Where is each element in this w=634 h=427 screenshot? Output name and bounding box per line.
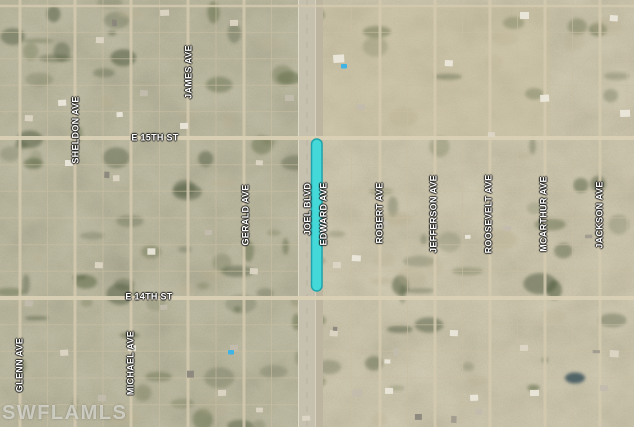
terrain-layer <box>0 0 634 427</box>
watermark: SWFLAMLS <box>2 402 127 425</box>
satellite-map[interactable]: GLENN AVESHELDON AVEMICHAEL AVEJAMES AVE… <box>0 0 634 427</box>
tint-west <box>0 0 299 427</box>
highlighted-road-segment[interactable] <box>312 139 323 291</box>
